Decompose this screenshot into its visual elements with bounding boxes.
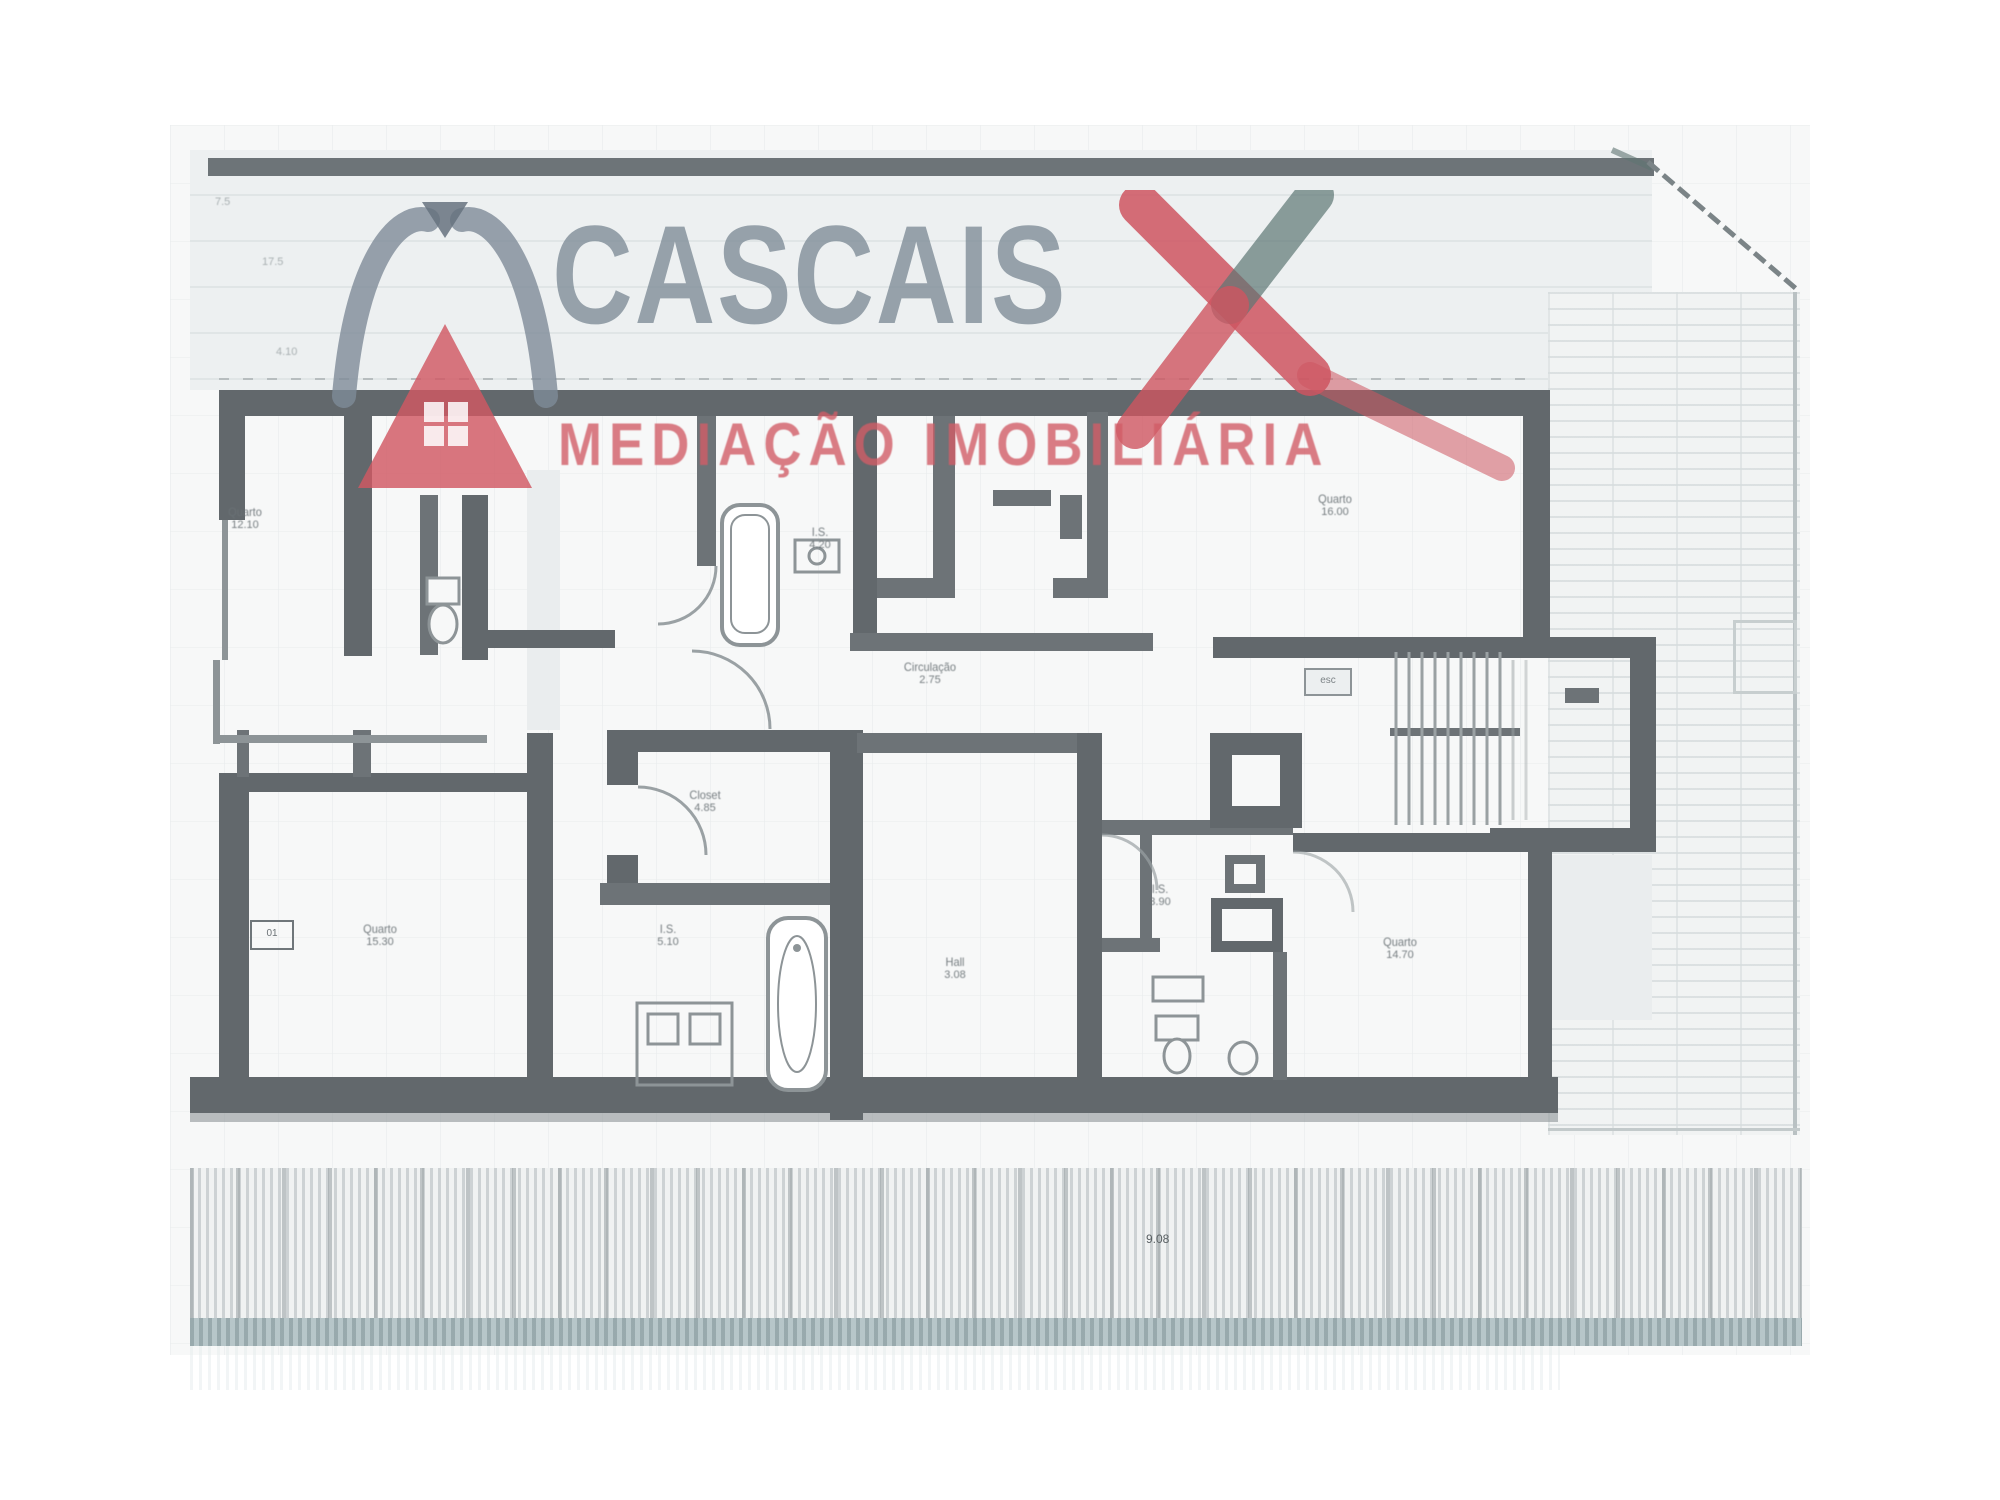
staircase bbox=[1396, 652, 1599, 825]
label-stairs: esc bbox=[1304, 668, 1352, 696]
label-room-top-right: Quarto 16.00 bbox=[1285, 492, 1385, 520]
dim-left: 4.10 bbox=[276, 346, 297, 358]
vanity-bottom-left bbox=[637, 1003, 732, 1085]
bathtub-bottom bbox=[768, 918, 826, 1090]
label-bath-top: I.S. 4.20 bbox=[780, 525, 860, 553]
plan-drawing bbox=[0, 0, 2000, 1500]
label-closet: Closet 4.85 bbox=[660, 788, 750, 816]
label-room-bottom-left: Quarto 15.30 bbox=[330, 922, 430, 950]
label-room-bottom-right: Quarto 14.70 bbox=[1350, 935, 1450, 963]
fixtures-center-bath bbox=[1153, 977, 1257, 1074]
dim-top: 17.5 bbox=[262, 256, 283, 268]
site-boundary bbox=[1612, 150, 1800, 292]
dim-corner: 7.5 bbox=[215, 196, 230, 208]
level-mark: 9.08 bbox=[1146, 1232, 1169, 1246]
label-bath-center: I.S. 3.90 bbox=[1125, 882, 1195, 910]
bathtub-top bbox=[722, 505, 778, 645]
floorplan-page: Quarto 12.10 I.S. 4.20 Quarto 16.00 Circ… bbox=[0, 0, 2000, 1500]
label-hall-center: Hall 3.08 bbox=[915, 955, 995, 983]
label-room-tag: 01 bbox=[250, 920, 294, 950]
label-circulation: Circulação 2.75 bbox=[870, 660, 990, 688]
label-bath-bottom-left: I.S. 5.10 bbox=[628, 922, 708, 950]
label-room-top-left: Quarto 12.10 bbox=[200, 505, 290, 533]
toilet-top bbox=[427, 578, 459, 643]
